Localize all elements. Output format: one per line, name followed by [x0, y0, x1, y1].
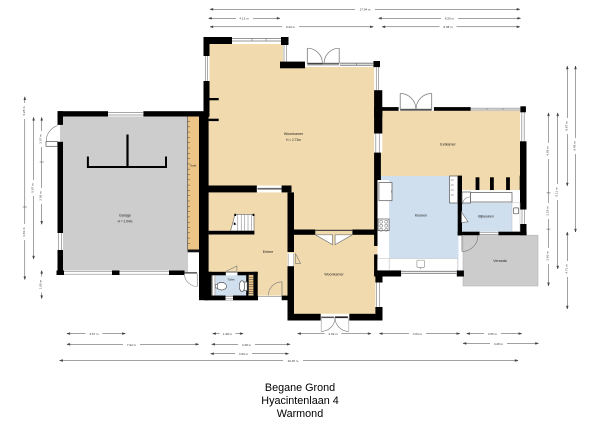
- svg-text:6.28 m: 6.28 m: [22, 106, 26, 116]
- svg-text:Toilet: Toilet: [227, 277, 234, 281]
- svg-text:3.81 m: 3.81 m: [22, 227, 26, 237]
- svg-text:7.92 m: 7.92 m: [127, 343, 137, 347]
- svg-text:Woonkamer: Woonkamer: [324, 272, 344, 276]
- svg-text:17.94 m: 17.94 m: [360, 8, 371, 12]
- svg-text:Hyacintenlaan 4: Hyacintenlaan 4: [261, 395, 338, 407]
- svg-text:H = 2.94m: H = 2.94m: [118, 220, 133, 224]
- svg-text:3.67 m: 3.67 m: [89, 332, 99, 336]
- svg-text:4.28 m: 4.28 m: [494, 342, 504, 346]
- svg-text:8.08 m: 8.08 m: [443, 25, 453, 29]
- svg-text:Woonkamer: Woonkamer: [284, 132, 304, 136]
- svg-text:2.67 m: 2.67 m: [39, 134, 43, 144]
- svg-text:4.38 m: 4.38 m: [242, 343, 252, 347]
- svg-text:1.95 m: 1.95 m: [39, 279, 43, 289]
- svg-text:9.43 m: 9.43 m: [286, 25, 296, 29]
- svg-text:4.63 m: 4.63 m: [413, 332, 423, 336]
- svg-text:4.65 m: 4.65 m: [546, 146, 550, 156]
- svg-text:4.49 m: 4.49 m: [328, 332, 338, 336]
- svg-text:4.50 m: 4.50 m: [239, 352, 249, 356]
- svg-text:8.87 m: 8.87 m: [564, 121, 568, 131]
- svg-text:Kast: Kast: [190, 163, 196, 167]
- svg-text:20.45 m: 20.45 m: [288, 359, 299, 363]
- svg-text:5.87 m: 5.87 m: [31, 183, 35, 193]
- svg-text:5.11 m: 5.11 m: [555, 187, 559, 196]
- svg-text:3.55 m: 3.55 m: [488, 332, 498, 336]
- svg-text:2.19 m: 2.19 m: [546, 206, 550, 216]
- svg-text:2.56 m: 2.56 m: [546, 251, 550, 261]
- svg-text:4.13 m: 4.13 m: [239, 17, 249, 21]
- svg-text:Veranda: Veranda: [493, 259, 506, 263]
- svg-text:1.98 m: 1.98 m: [223, 332, 233, 336]
- svg-text:9.48 m: 9.48 m: [573, 141, 577, 151]
- svg-text:Garage: Garage: [119, 214, 131, 218]
- svg-text:Keuken: Keuken: [415, 213, 427, 217]
- svg-text:Begane Grond: Begane Grond: [265, 382, 335, 394]
- svg-text:Eetkamer: Eetkamer: [440, 142, 456, 146]
- svg-text:8.29 m: 8.29 m: [445, 17, 455, 21]
- svg-text:4.71 m: 4.71 m: [564, 264, 568, 274]
- svg-text:H = 2.73m: H = 2.73m: [286, 138, 301, 142]
- svg-text:Entree: Entree: [263, 250, 274, 254]
- svg-text:Bijkeuken: Bijkeuken: [478, 215, 494, 219]
- svg-text:2.06 m: 2.06 m: [39, 191, 43, 201]
- svg-text:Warmond: Warmond: [277, 408, 323, 420]
